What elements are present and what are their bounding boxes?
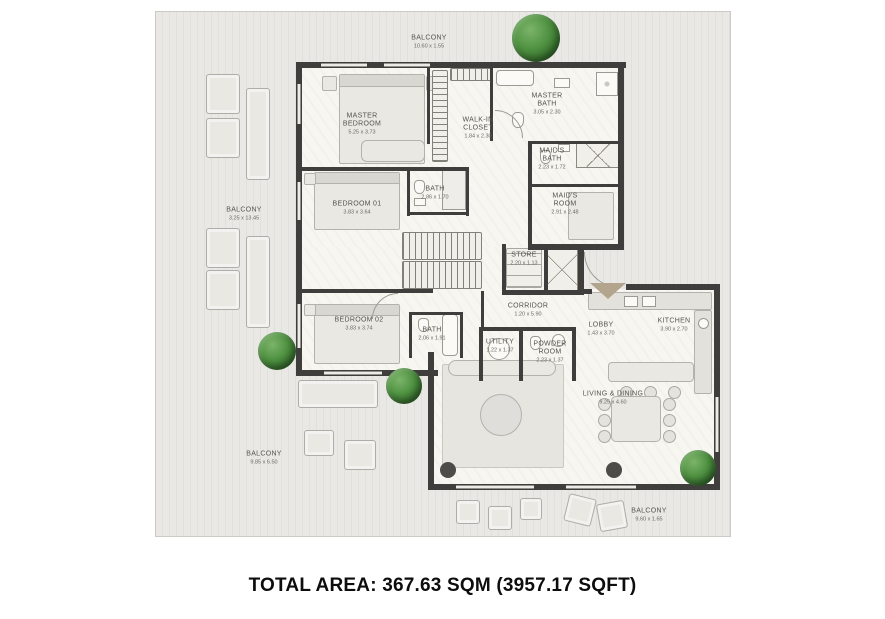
wall-segment bbox=[544, 244, 548, 295]
wall-segment bbox=[528, 244, 624, 250]
room-name: MASTER BATH bbox=[528, 93, 566, 109]
bathtub bbox=[496, 70, 534, 86]
planter bbox=[606, 462, 622, 478]
wall-segment bbox=[502, 290, 582, 295]
room-name: WALK-IN CLOSET bbox=[459, 117, 497, 133]
wall-segment bbox=[296, 167, 468, 171]
room-label-walkin-closet: WALK-IN CLOSET 1.84 x 2.30 bbox=[459, 117, 497, 140]
room-name: LOBBY bbox=[581, 322, 621, 330]
wardrobe bbox=[402, 232, 482, 260]
room-label-utility: UTILITY 1.22 x 1.37 bbox=[482, 339, 518, 354]
dining-chair bbox=[663, 398, 676, 411]
room-name: UTILITY bbox=[482, 339, 518, 347]
wall-segment bbox=[481, 291, 484, 329]
room-name: KITCHEN bbox=[649, 318, 699, 326]
room-name: CORRIDOR bbox=[498, 303, 558, 311]
room-label-bath-01: BATH 2.86 x 1.70 bbox=[415, 186, 455, 201]
nightstand bbox=[304, 173, 316, 185]
room-label-living-dining: LIVING & DINING 9.25 x 4.60 bbox=[568, 391, 658, 406]
window bbox=[456, 485, 534, 489]
room-dims: 1.43 x 3.70 bbox=[581, 330, 621, 336]
balcony-pouf bbox=[520, 498, 542, 520]
dining-chair bbox=[598, 414, 611, 427]
cooktop bbox=[624, 296, 638, 307]
floor-plan: BALCONY 10.60 x 1.55 BALCONY 3.25 x 13.4… bbox=[155, 11, 731, 537]
window bbox=[715, 397, 719, 452]
balcony-label-top: BALCONY 10.60 x 1.55 bbox=[394, 35, 464, 50]
dining-chair bbox=[663, 430, 676, 443]
elevator-shaft bbox=[546, 246, 578, 292]
room-label-bedroom-02: BEDROOM 02 3.83 x 3.74 bbox=[324, 317, 394, 332]
wall-segment bbox=[578, 244, 584, 295]
nightstand bbox=[322, 76, 337, 91]
room-dims: 1.20 x 5.90 bbox=[498, 311, 558, 317]
room-dims: 3.05 x 2.30 bbox=[528, 109, 566, 115]
wall-segment bbox=[427, 62, 430, 144]
room-dims: 2.23 x 1.72 bbox=[536, 164, 568, 170]
room-dims: 3.25 x 13.45 bbox=[209, 215, 279, 221]
wall-segment bbox=[626, 284, 720, 290]
room-label-maids-room: MAID'S ROOM 2.91 x 2.48 bbox=[549, 193, 581, 216]
wall-segment bbox=[528, 141, 618, 144]
balcony-label-bottom-right: BALCONY 9.60 x 1.65 bbox=[614, 508, 684, 523]
room-label-bedroom-01: BEDROOM 01 3.83 x 3.64 bbox=[322, 201, 392, 216]
room-dims: 9.25 x 4.60 bbox=[568, 399, 658, 405]
balcony-chair bbox=[206, 270, 240, 310]
laundry-unit bbox=[576, 142, 620, 168]
tree-icon bbox=[386, 368, 422, 404]
room-name: MAID'S BATH bbox=[536, 148, 568, 164]
room-dims: 3.90 x 2.70 bbox=[649, 326, 699, 332]
room-dims: 5.25 x 3.73 bbox=[333, 129, 391, 135]
room-name: POWDER ROOM bbox=[532, 341, 568, 357]
room-name: STORE bbox=[504, 252, 544, 260]
wall-segment bbox=[479, 327, 483, 381]
room-name: BEDROOM 01 bbox=[322, 201, 392, 209]
balcony-chair bbox=[206, 228, 240, 268]
room-name: MAID'S ROOM bbox=[549, 193, 581, 209]
room-dims: 3.83 x 3.64 bbox=[322, 209, 392, 215]
shower bbox=[596, 72, 618, 96]
entrance-arrow-icon bbox=[590, 283, 626, 299]
balcony-label-left: BALCONY 3.25 x 13.45 bbox=[209, 207, 279, 222]
bed-headboard bbox=[340, 75, 424, 87]
room-dims: 2.86 x 1.70 bbox=[415, 194, 455, 200]
balcony-pouf bbox=[488, 506, 512, 530]
window bbox=[321, 63, 367, 67]
wall-segment bbox=[528, 141, 532, 244]
wall-segment bbox=[428, 352, 434, 490]
room-label-powder-room: POWDER ROOM 2.23 x 1.37 bbox=[532, 341, 568, 364]
closet-unit bbox=[432, 70, 448, 162]
wardrobe bbox=[402, 261, 482, 289]
room-dims: 2.20 x 1.13 bbox=[504, 260, 544, 266]
dining-chair bbox=[663, 414, 676, 427]
balcony-sofa bbox=[246, 236, 270, 328]
room-label-bath-02: BATH 2.06 x 1.91 bbox=[412, 327, 452, 342]
window bbox=[297, 304, 301, 348]
window bbox=[384, 63, 430, 67]
balcony-sofa bbox=[246, 88, 270, 180]
window bbox=[566, 485, 636, 489]
room-name: BALCONY bbox=[394, 35, 464, 43]
room-label-master-bath: MASTER BATH 3.05 x 2.30 bbox=[528, 93, 566, 116]
closet-unit bbox=[450, 68, 492, 81]
room-dims: 2.23 x 1.37 bbox=[532, 357, 568, 363]
dining-chair bbox=[598, 430, 611, 443]
wall-segment bbox=[296, 289, 433, 293]
nightstand bbox=[304, 304, 316, 316]
sofa bbox=[361, 140, 425, 162]
room-name: LIVING & DINING bbox=[568, 391, 658, 399]
wall-segment bbox=[460, 312, 463, 358]
balcony-sofa bbox=[298, 380, 378, 408]
room-label-maids-bath: MAID'S BATH 2.23 x 1.72 bbox=[536, 148, 568, 171]
wall-segment bbox=[528, 184, 618, 187]
room-label-kitchen: KITCHEN 3.90 x 2.70 bbox=[649, 318, 699, 333]
bed-headboard bbox=[315, 173, 399, 184]
page: { "footer": { "total_area": "TOTAL AREA:… bbox=[0, 0, 885, 619]
room-label-corridor: CORRIDOR 1.20 x 5.90 bbox=[498, 303, 558, 318]
wall-segment bbox=[409, 312, 463, 315]
room-dims: 9.60 x 1.65 bbox=[614, 516, 684, 522]
wall-segment bbox=[479, 327, 576, 331]
room-name: BALCONY bbox=[614, 508, 684, 516]
sink bbox=[554, 78, 570, 88]
balcony-pouf bbox=[456, 500, 480, 524]
balcony-chair bbox=[344, 440, 376, 470]
coffee-table bbox=[480, 394, 522, 436]
wall-segment bbox=[714, 284, 720, 490]
balcony-label-bottom-left: BALCONY 9.85 x 6.50 bbox=[229, 451, 299, 466]
room-dims: 1.22 x 1.37 bbox=[482, 347, 518, 353]
balcony-chair bbox=[206, 118, 240, 158]
wall-segment bbox=[407, 167, 410, 216]
tree-icon bbox=[680, 450, 716, 486]
planter bbox=[440, 462, 456, 478]
wall-segment bbox=[407, 212, 469, 215]
kitchen-sink bbox=[698, 318, 709, 329]
room-name: BEDROOM 02 bbox=[324, 317, 394, 325]
room-dims: 2.06 x 1.91 bbox=[412, 335, 452, 341]
room-label-store: STORE 2.20 x 1.13 bbox=[504, 252, 544, 267]
room-name: BATH bbox=[415, 186, 455, 194]
room-label-lobby: LOBBY 1.43 x 3.70 bbox=[581, 322, 621, 337]
window bbox=[297, 84, 301, 124]
room-name: BALCONY bbox=[229, 451, 299, 459]
tree-icon bbox=[258, 332, 296, 370]
room-dims: 3.83 x 3.74 bbox=[324, 325, 394, 331]
room-dims: 1.84 x 2.30 bbox=[459, 133, 497, 139]
room-dims: 10.60 x 1.55 bbox=[394, 43, 464, 49]
room-name: BATH bbox=[412, 327, 452, 335]
window bbox=[324, 371, 382, 375]
wall-segment bbox=[572, 327, 576, 381]
window bbox=[297, 182, 301, 220]
wall-segment bbox=[519, 327, 523, 381]
room-name: BALCONY bbox=[209, 207, 279, 215]
wall-segment bbox=[618, 62, 624, 250]
kitchen-island bbox=[608, 362, 694, 382]
balcony-table bbox=[304, 430, 334, 456]
total-area-text: TOTAL AREA: 367.63 SQM (3957.17 SQFT) bbox=[0, 575, 885, 597]
tree-icon bbox=[512, 14, 560, 62]
balcony-chair bbox=[206, 74, 240, 114]
wall-segment bbox=[466, 167, 469, 216]
cooktop bbox=[642, 296, 656, 307]
room-dims: 9.85 x 6.50 bbox=[229, 459, 299, 465]
room-label-master-bedroom: MASTER BEDROOM 5.25 x 3.73 bbox=[333, 113, 391, 136]
room-dims: 2.91 x 2.48 bbox=[549, 209, 581, 215]
balcony-chair bbox=[563, 493, 597, 527]
room-name: MASTER BEDROOM bbox=[333, 113, 391, 129]
